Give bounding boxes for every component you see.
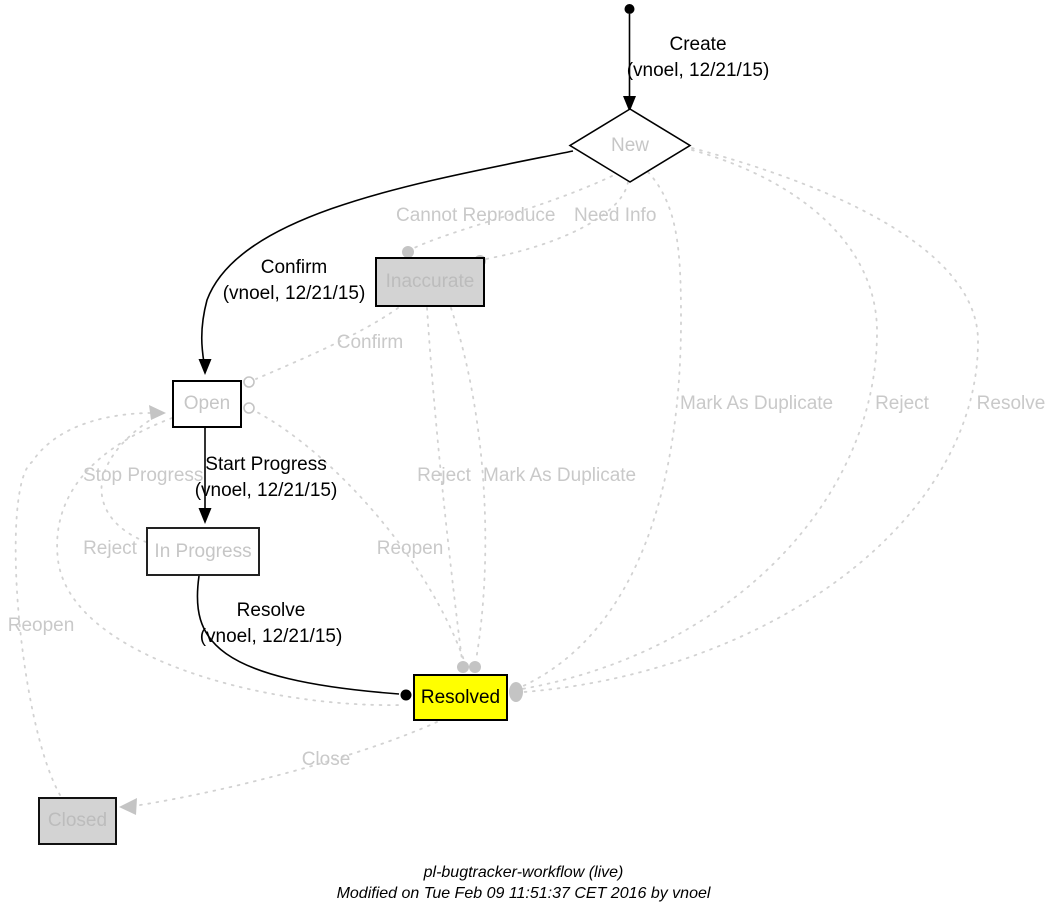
transition-label-reject-inaccurate[interactable]: Reject bbox=[413, 465, 475, 487]
transition-label-resolve[interactable]: Resolve (vnoel, 12/21/15) bbox=[191, 598, 351, 650]
arrowhead-open-left bbox=[149, 405, 166, 420]
transition-label-reopen-resolved[interactable]: Reopen bbox=[376, 538, 444, 560]
state-inaccurate[interactable]: Inaccurate bbox=[375, 257, 485, 307]
workflow-modified: Modified on Tue Feb 09 11:51:37 CET 2016… bbox=[0, 883, 1047, 904]
workflow-diagram: New Inaccurate Open In Progress Resolved… bbox=[0, 0, 1047, 923]
transition-label-reject-open[interactable]: Reject bbox=[83, 538, 137, 560]
port-resolved-top-left bbox=[457, 661, 469, 673]
transition-label-mark-as-duplicate-inaccurate[interactable]: Mark As Duplicate bbox=[483, 465, 633, 487]
port-resolved-right bbox=[509, 682, 523, 702]
transition-create-name: Create bbox=[618, 32, 778, 58]
state-new-label: New bbox=[570, 134, 690, 158]
state-open[interactable]: Open bbox=[172, 380, 242, 428]
transition-label-cannot-reproduce[interactable]: Cannot Reproduce bbox=[396, 205, 552, 227]
transition-label-close[interactable]: Close bbox=[301, 749, 351, 771]
transition-resolve-meta: (vnoel, 12/21/15) bbox=[191, 624, 351, 650]
transition-label-need-info[interactable]: Need Info bbox=[574, 205, 654, 227]
transition-confirm-meta: (vnoel, 12/21/15) bbox=[214, 281, 374, 307]
active-edge-markers bbox=[199, 4, 637, 701]
edge-close bbox=[134, 722, 437, 806]
edge-mark-as-duplicate-new bbox=[521, 172, 681, 687]
edge-resolve-new bbox=[524, 148, 978, 692]
arrowhead-inprogress-top bbox=[199, 508, 212, 524]
transition-label-reopen-closed[interactable]: Reopen bbox=[5, 615, 77, 637]
transition-label-reject-new[interactable]: Reject bbox=[875, 393, 929, 415]
port-open-right-bottom bbox=[244, 403, 254, 413]
arrowhead-closed-right bbox=[119, 798, 137, 815]
transition-label-confirm-inactive[interactable]: Confirm bbox=[334, 332, 406, 354]
transition-confirm-name: Confirm bbox=[214, 255, 374, 281]
transition-label-resolve-new[interactable]: Resolve bbox=[976, 393, 1046, 415]
port-resolved-top-right bbox=[469, 661, 481, 673]
port-open-right-top bbox=[244, 377, 254, 387]
transition-create-meta: (vnoel, 12/21/15) bbox=[618, 58, 778, 84]
diagram-caption: pl-bugtracker-workflow (live) Modified o… bbox=[0, 862, 1047, 904]
transition-label-start-progress[interactable]: Start Progress (vnoel, 12/21/15) bbox=[186, 452, 346, 504]
transition-label-mark-as-duplicate-new[interactable]: Mark As Duplicate bbox=[680, 393, 828, 415]
transition-label-confirm[interactable]: Confirm (vnoel, 12/21/15) bbox=[214, 255, 374, 307]
workflow-title: pl-bugtracker-workflow (live) bbox=[0, 862, 1047, 883]
transition-start-progress-meta: (vnoel, 12/21/15) bbox=[186, 478, 346, 504]
transition-label-create[interactable]: Create (vnoel, 12/21/15) bbox=[618, 32, 778, 84]
state-resolved[interactable]: Resolved bbox=[413, 674, 508, 721]
arrowhead-open-top bbox=[199, 359, 212, 375]
transition-start-progress-name: Start Progress bbox=[186, 452, 346, 478]
state-in-progress[interactable]: In Progress bbox=[146, 527, 260, 576]
transition-resolve-name: Resolve bbox=[191, 598, 351, 624]
edge-resolve-end-dot bbox=[401, 690, 412, 701]
state-closed[interactable]: Closed bbox=[38, 797, 117, 845]
edge-layer bbox=[0, 0, 1047, 923]
initial-state-dot bbox=[625, 4, 635, 14]
transition-label-stop-progress[interactable]: Stop Progress bbox=[83, 465, 201, 487]
